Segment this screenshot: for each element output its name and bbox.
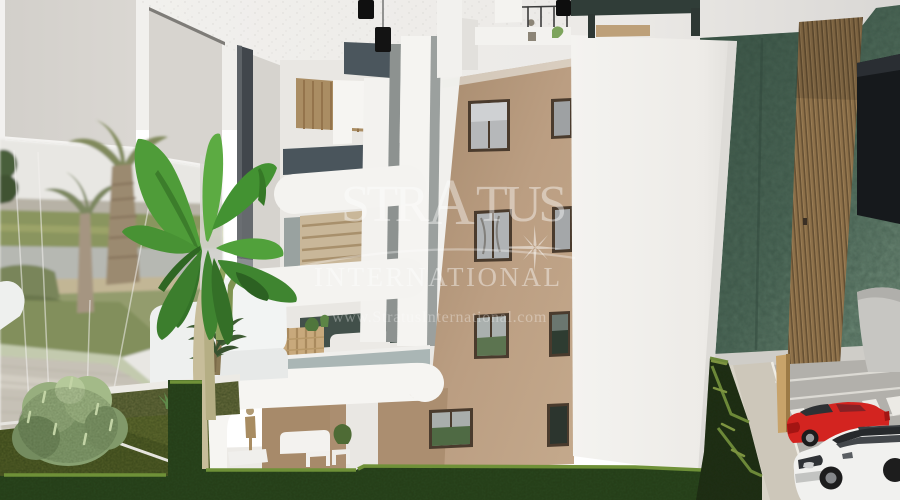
svg-text:INTERNATIONAL: INTERNATIONAL	[314, 262, 562, 292]
svg-text:STR: STR	[341, 176, 430, 233]
svg-text:A: A	[427, 166, 475, 239]
svg-text:TUS: TUS	[476, 176, 564, 233]
svg-text:www.StratusInternational.com: www.StratusInternational.com	[332, 309, 547, 326]
